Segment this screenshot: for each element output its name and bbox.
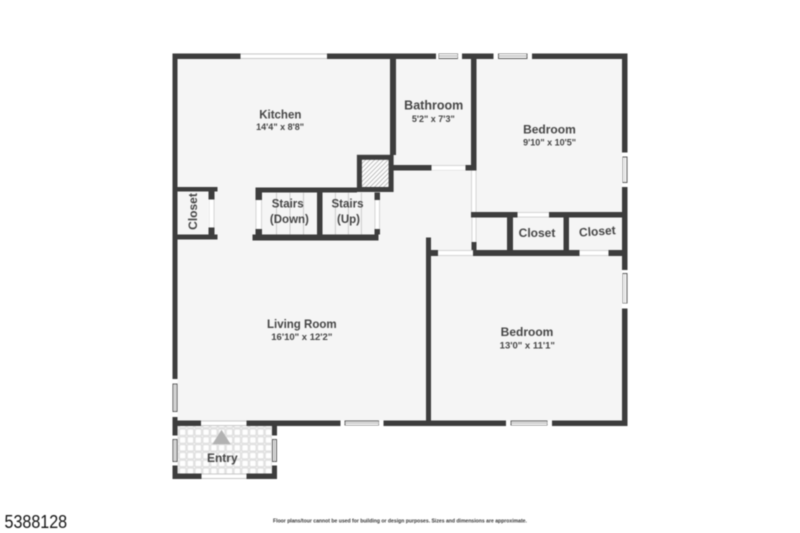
svg-text:Bathroom: Bathroom — [404, 99, 463, 113]
svg-text:16'10" x 12'2": 16'10" x 12'2" — [271, 332, 332, 343]
svg-text:5388128: 5388128 — [5, 511, 68, 532]
svg-text:Bedroom: Bedroom — [523, 123, 576, 137]
svg-text:14'4" x 8'8": 14'4" x 8'8" — [256, 122, 304, 132]
svg-text:Closet: Closet — [186, 193, 200, 230]
svg-text:Entry: Entry — [207, 451, 238, 465]
svg-text:Bedroom: Bedroom — [501, 325, 554, 339]
svg-text:Living Room: Living Room — [267, 319, 337, 331]
svg-text:Closet: Closet — [519, 226, 556, 240]
svg-text:Stairs: Stairs — [332, 199, 364, 211]
svg-text:(Down): (Down) — [270, 214, 309, 226]
svg-text:13'0" x 11'1": 13'0" x 11'1" — [500, 340, 555, 351]
svg-text:9'10" x 10'5": 9'10" x 10'5" — [523, 138, 576, 148]
svg-text:Closet: Closet — [579, 223, 617, 240]
svg-text:Floor plans/tour cannot be use: Floor plans/tour cannot be used for buil… — [273, 519, 527, 525]
svg-text:Kitchen: Kitchen — [259, 110, 301, 122]
svg-text:Stairs: Stairs — [272, 199, 304, 211]
svg-text:(Up): (Up) — [337, 214, 360, 226]
svg-text:5'2" x 7'3": 5'2" x 7'3" — [412, 114, 455, 124]
